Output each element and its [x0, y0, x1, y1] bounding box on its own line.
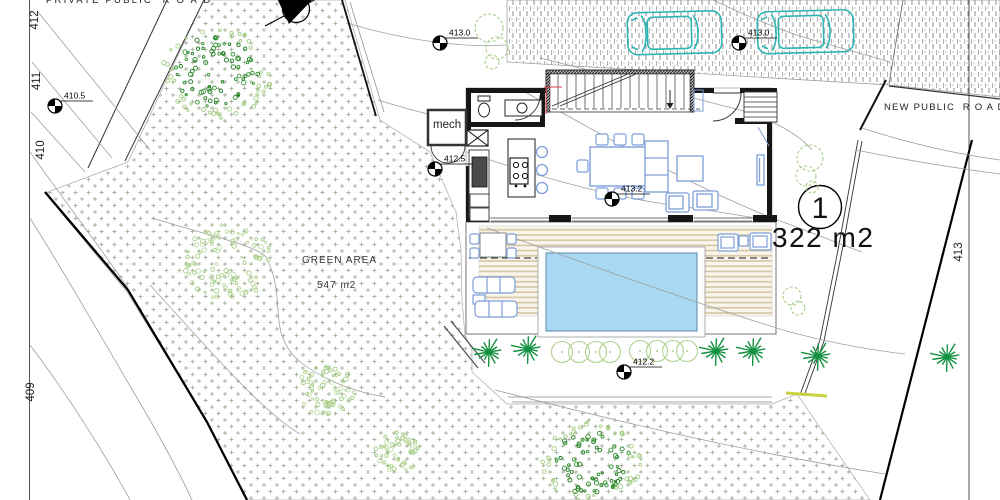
- palm-tree-icon: [930, 344, 959, 372]
- contour-elevation-label: 412: [29, 10, 41, 29]
- sofa: [645, 141, 668, 192]
- sink-basin: [517, 103, 527, 113]
- site-plan-svg: 1 322 m2 410.5413.0413.0412.5413.2412.2 …: [0, 0, 1000, 500]
- spot-elevation-value: 412.2: [633, 357, 655, 367]
- contour-elevation-label: 409: [25, 382, 37, 401]
- fence-east-2: [804, 141, 862, 396]
- boundary-east-top: [860, 80, 886, 130]
- south-windows: [491, 218, 752, 221]
- spot-elevation-value: 413.0: [748, 28, 770, 38]
- shrub-row: [552, 342, 621, 363]
- tv-console: [757, 155, 764, 185]
- fence-east-1: [800, 140, 858, 395]
- survey-yellow-segment: [786, 393, 827, 396]
- spot-elevation-value: 412.5: [444, 154, 466, 164]
- private-road-label: PRIVATE PUBLIC R O A D: [46, 0, 212, 6]
- outline-bush: [796, 166, 816, 186]
- spot-elevation-value: 413.0: [449, 28, 471, 38]
- plot-number-mark: 1 322 m2: [772, 186, 874, 254]
- plot-number: 1: [812, 192, 829, 225]
- bar-stools: [537, 147, 548, 194]
- site-plan-drawing: 1 322 m2 410.5413.0413.0412.5413.2412.2 …: [0, 0, 1000, 500]
- dining-table: [590, 147, 652, 186]
- spot-elevation-value: 410.5: [64, 91, 86, 101]
- palm-tree-icon: [511, 336, 540, 364]
- boundary-east-road: [880, 140, 972, 500]
- stair-block: [546, 70, 700, 112]
- spot-elevation-marker: 413.0: [433, 28, 478, 51]
- spot-elevation-marker: 412.2: [617, 357, 662, 380]
- sun-lounger-2: [475, 301, 517, 317]
- toilet-tank: [478, 96, 490, 101]
- green-area-value: 547 m2: [317, 281, 356, 291]
- contour-elevation-label: 413: [953, 242, 965, 261]
- pool: [546, 253, 697, 331]
- green-area-title: GREEN AREA: [302, 256, 377, 266]
- contour-elevation-label: 410: [35, 140, 47, 159]
- palm-tree-icon: [699, 338, 728, 366]
- plot-area-label: 322 m2: [772, 222, 874, 253]
- outline-bush: [486, 37, 508, 59]
- spot-elevation-value: 413.2: [621, 184, 643, 194]
- spot-elevation-marker: 410.5: [48, 91, 93, 114]
- palm-tree-icon: [801, 343, 830, 371]
- shaft: [467, 130, 488, 146]
- new-road-label: NEW PUBLIC R O A D: [884, 103, 1000, 113]
- contour-elevation-label: 411: [31, 72, 43, 90]
- oven: [472, 157, 487, 187]
- cooktop: [510, 158, 528, 184]
- outline-bush: [475, 14, 503, 42]
- mech-room-label: mech: [433, 120, 461, 132]
- coffee-table: [677, 156, 703, 181]
- outline-bush: [485, 55, 499, 69]
- sun-lounger-1: [473, 277, 515, 293]
- outline-bush: [783, 287, 801, 305]
- toilet-bowl: [479, 103, 490, 117]
- palm-tree-icon: [736, 338, 765, 366]
- outdoor-table: [480, 233, 506, 257]
